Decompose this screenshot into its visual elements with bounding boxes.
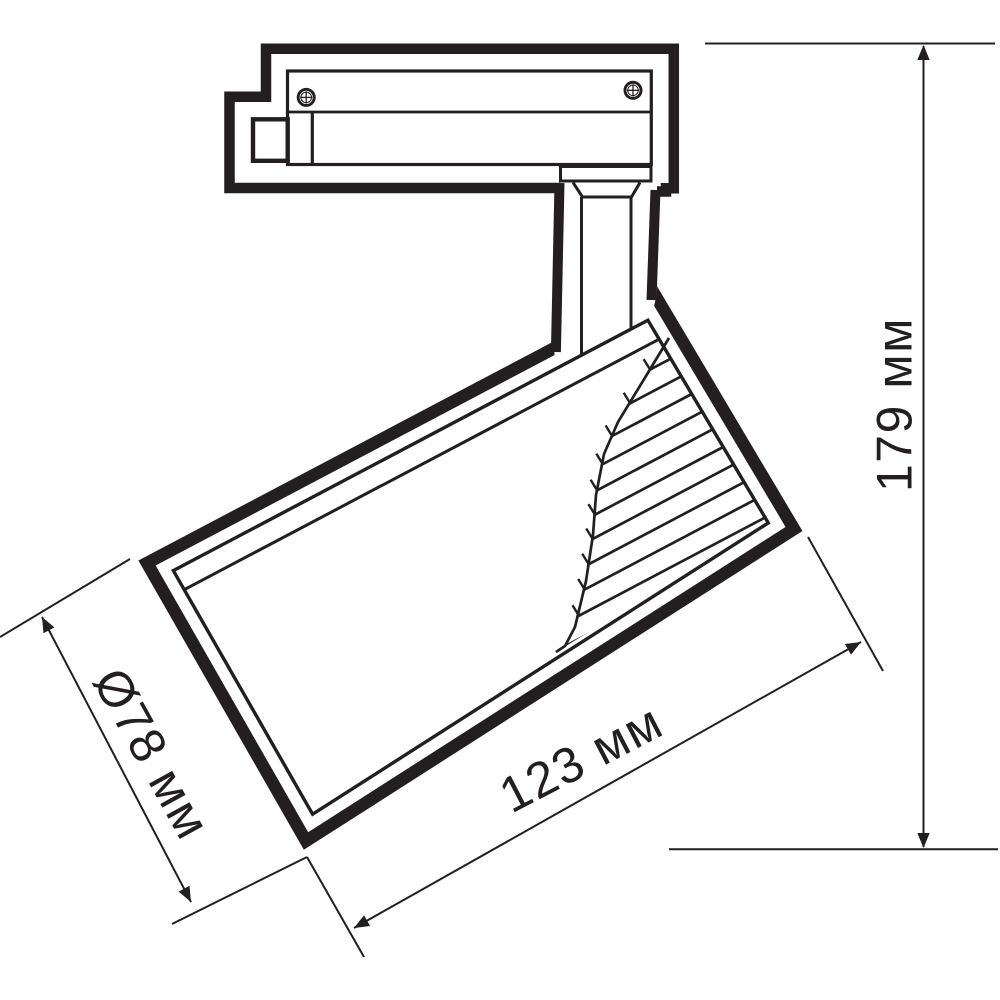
svg-text:179 мм: 179 мм <box>867 317 923 492</box>
